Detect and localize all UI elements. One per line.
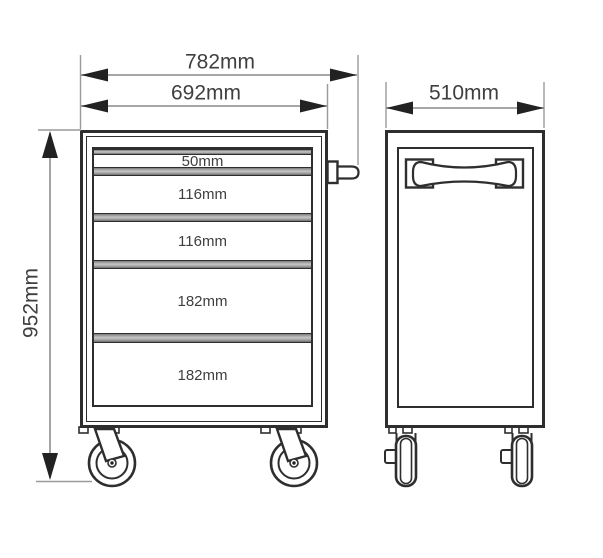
arrowhead-left [81,100,108,113]
front-caster-left [79,427,135,486]
arrowhead-left [386,102,413,115]
side-push-handle [328,162,359,184]
dimension-692 [81,84,328,129]
front-caster-right [261,427,317,486]
caster-wheel [396,436,416,486]
top-handle [406,160,523,188]
dimension-952 [36,130,92,482]
arrowhead-down [42,453,58,480]
arrowhead-right [517,102,544,115]
side-caster-left [385,427,416,486]
dimension-782 [81,55,359,165]
arrowhead-right [330,69,357,82]
dimension-510 [386,82,544,128]
drawing-linework [0,0,603,558]
arrowhead-left [81,69,108,82]
caster-wheel [512,436,532,486]
tool-cabinet-dimension-drawing: 50mm 116mm 116mm 182mm 182mm 782mm 692mm… [0,0,603,558]
arrowhead-up [42,131,58,158]
arrowhead-right [300,100,327,113]
handle-grip [338,167,359,179]
handle-grip [413,162,516,186]
handle-mount [328,162,338,184]
side-caster-right [501,427,532,486]
